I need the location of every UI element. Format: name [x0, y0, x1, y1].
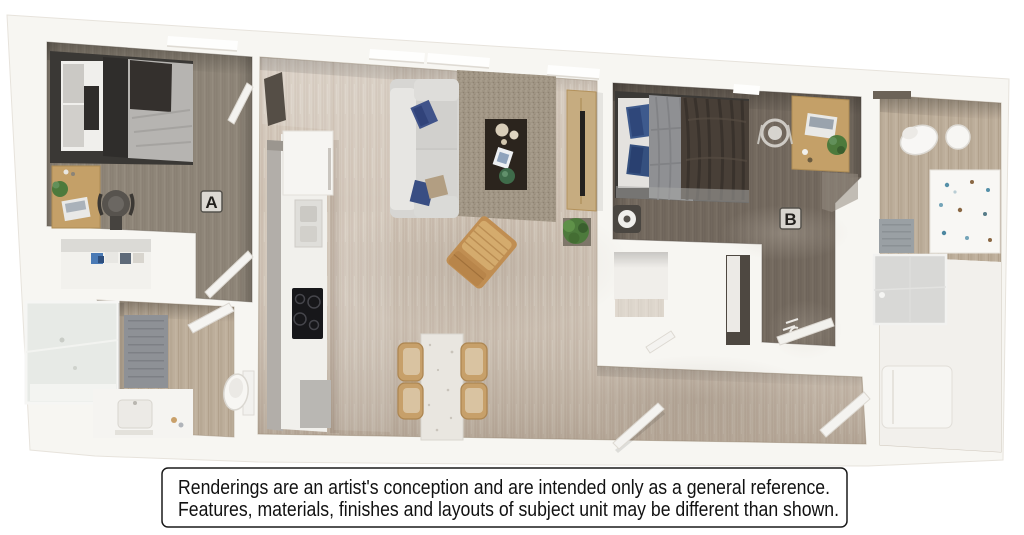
svg-text:A: A	[205, 193, 217, 212]
svg-text:B: B	[784, 210, 796, 229]
svg-text:Renderings are an artist's con: Renderings are an artist's conception an…	[178, 477, 830, 499]
svg-text:Features, materials, finishes: Features, materials, finishes and layout…	[178, 499, 839, 521]
